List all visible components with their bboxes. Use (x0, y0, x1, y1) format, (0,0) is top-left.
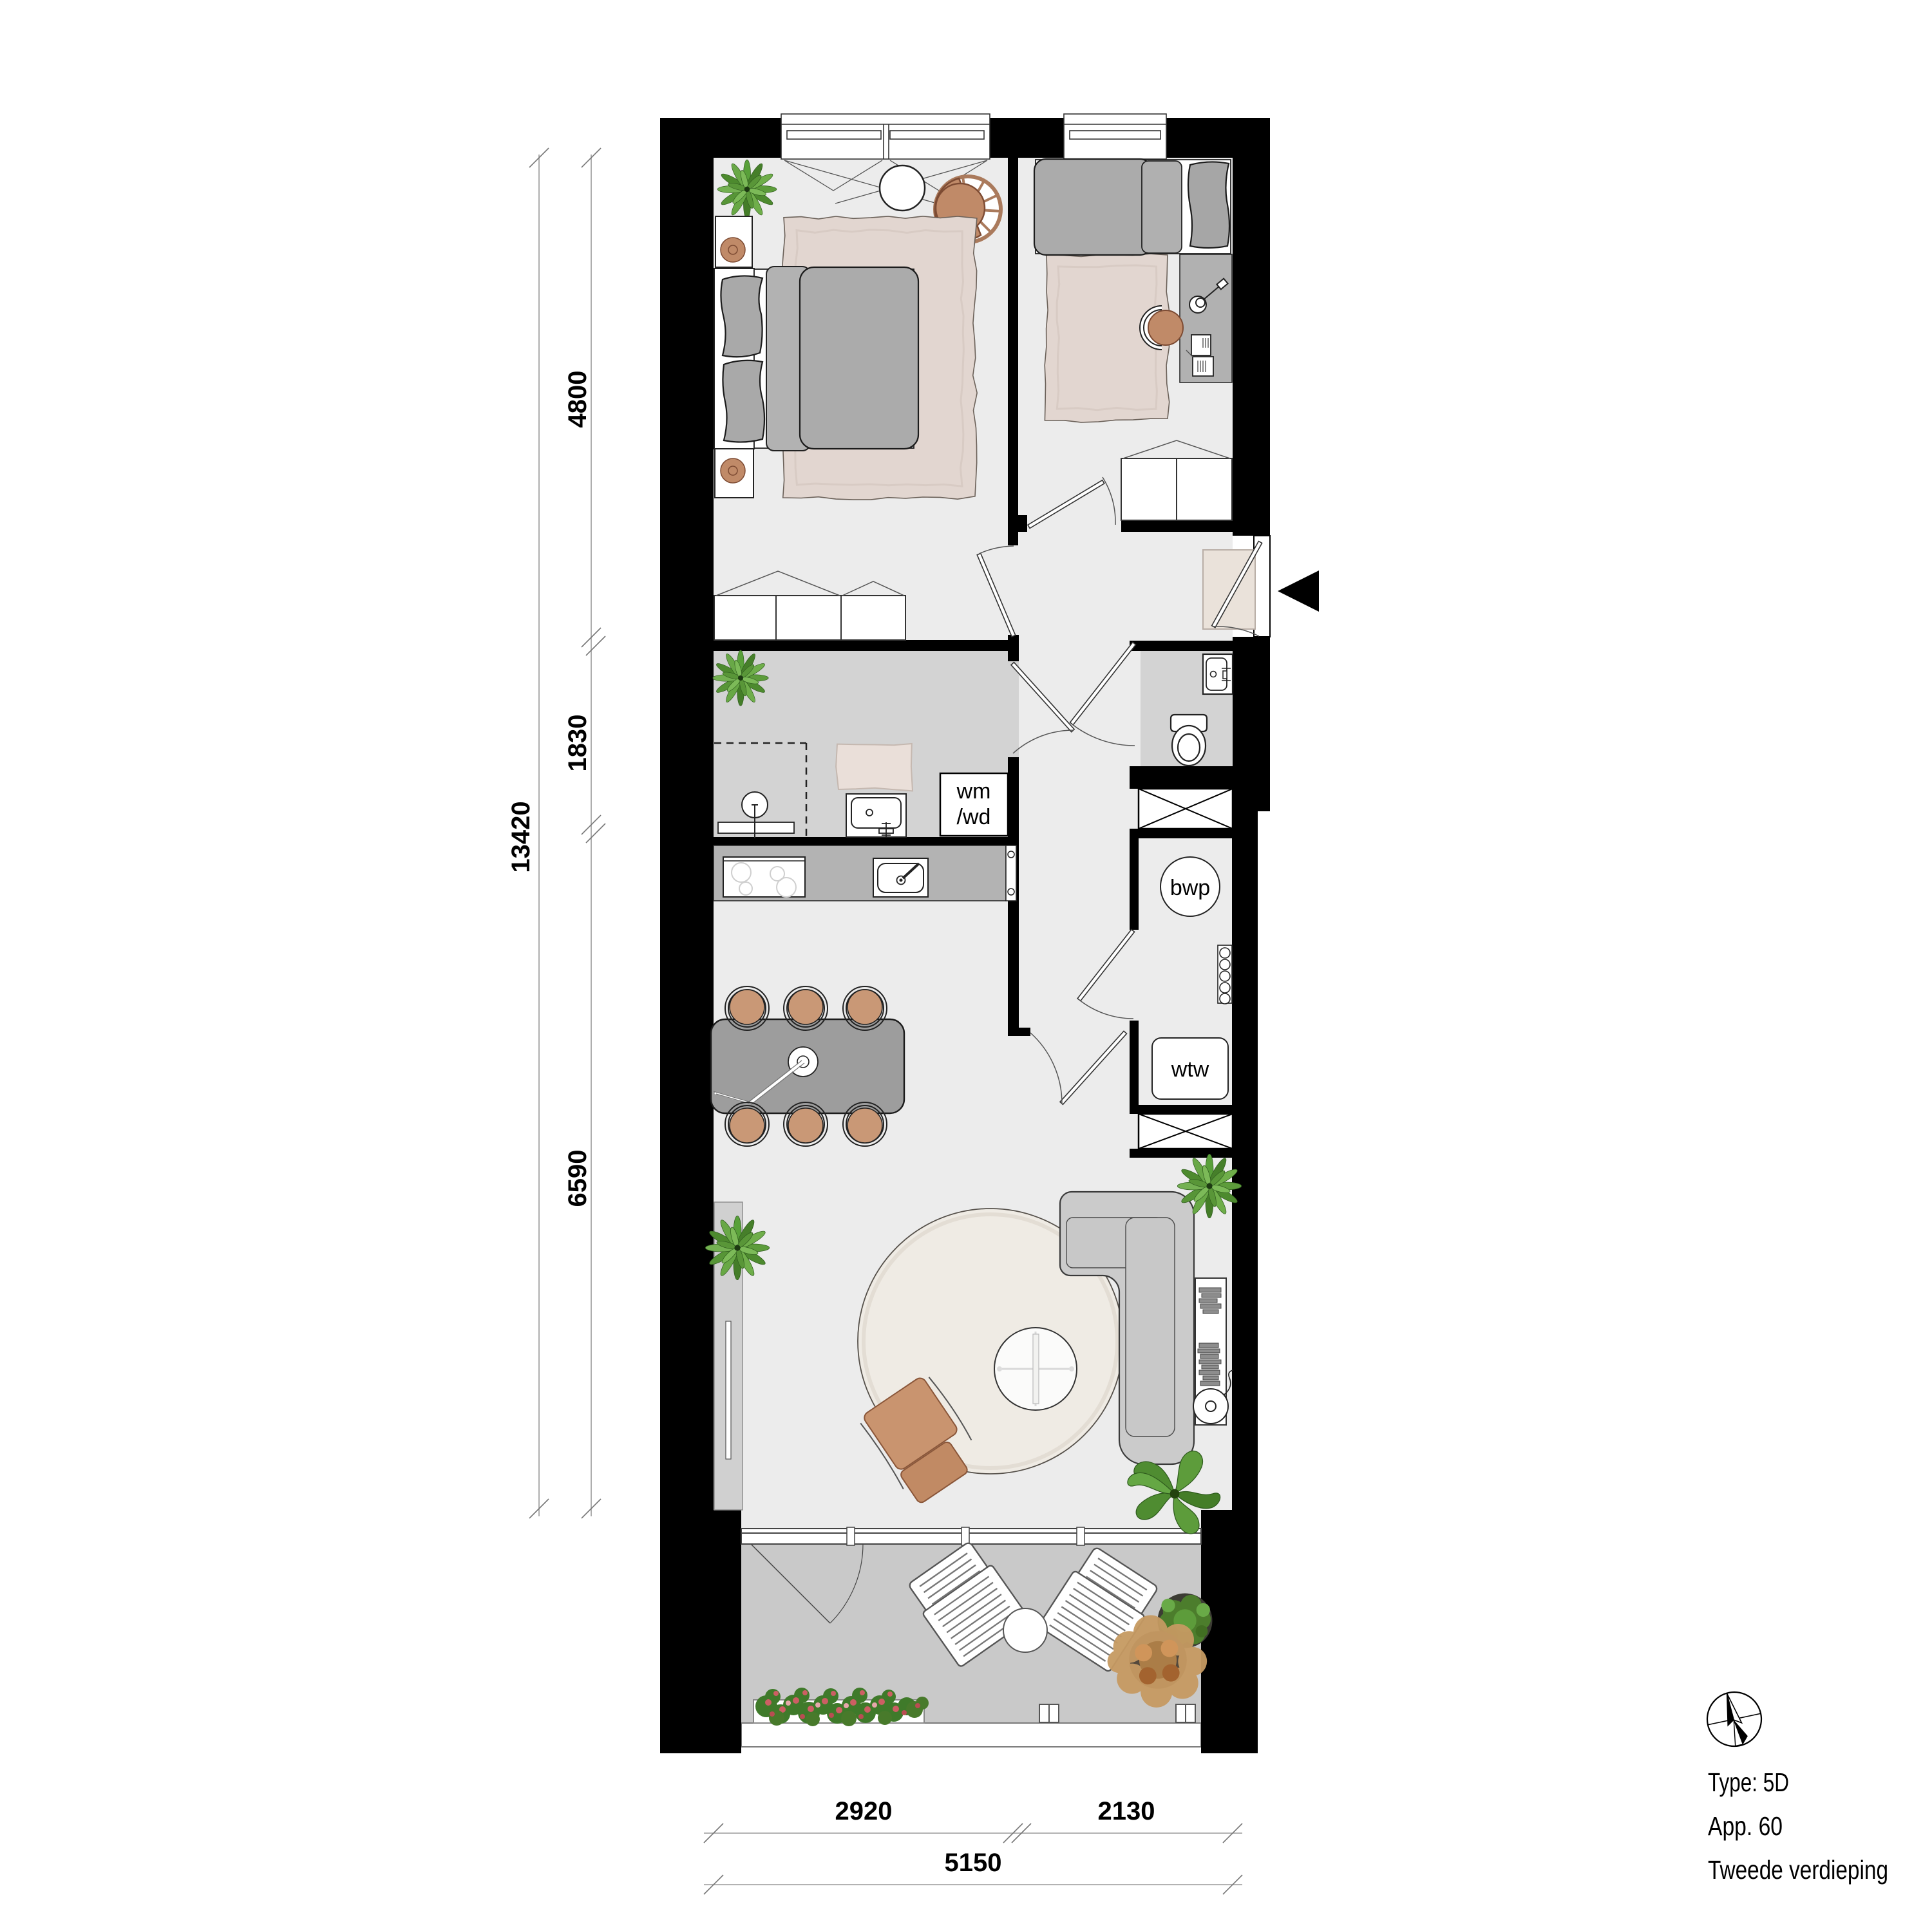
svg-text:bwp: bwp (1170, 876, 1210, 900)
svg-text:1830: 1830 (563, 715, 592, 772)
svg-text:13420: 13420 (507, 801, 535, 872)
svg-text:App. 60: App. 60 (1708, 1811, 1783, 1841)
svg-text:5150: 5150 (945, 1849, 1002, 1877)
svg-text:Tweede verdieping: Tweede verdieping (1708, 1855, 1888, 1885)
svg-text:Type: 5D: Type: 5D (1708, 1767, 1789, 1797)
svg-text:4800: 4800 (563, 371, 592, 428)
svg-text:2130: 2130 (1098, 1797, 1155, 1825)
svg-text:wm: wm (956, 779, 991, 804)
svg-text:/wd: /wd (957, 805, 991, 829)
svg-text:2920: 2920 (835, 1797, 893, 1825)
svg-text:wtw: wtw (1171, 1057, 1209, 1082)
svg-text:6590: 6590 (563, 1150, 592, 1207)
